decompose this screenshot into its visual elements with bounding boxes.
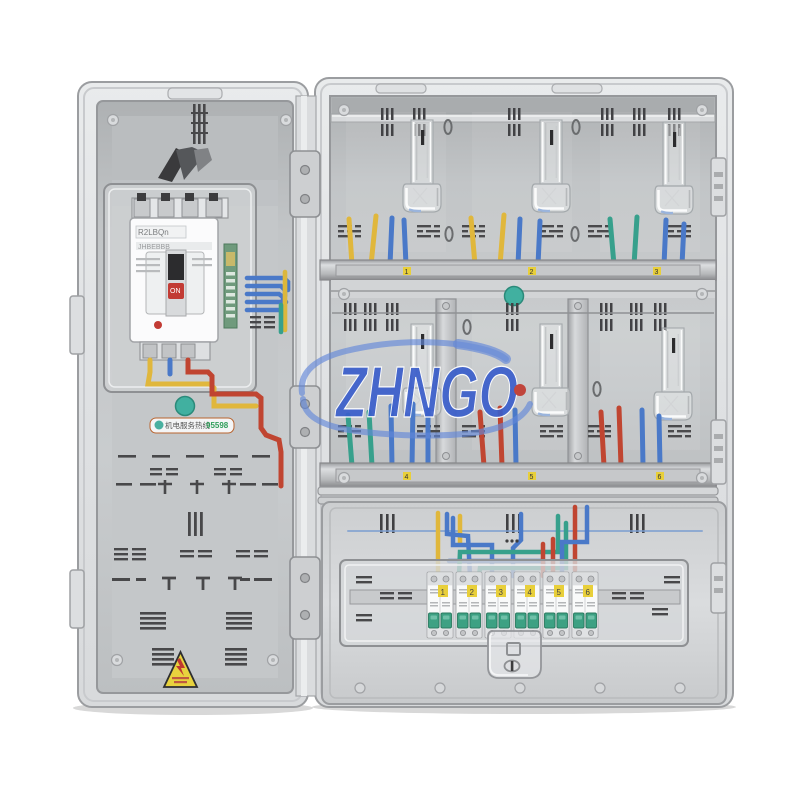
svg-text:5: 5 [557,588,562,597]
svg-text:3: 3 [499,588,504,597]
svg-text:2: 2 [530,269,534,276]
svg-text:6: 6 [586,588,591,597]
svg-text:ON: ON [170,288,181,295]
svg-text:5: 5 [530,474,534,481]
svg-text:1: 1 [441,588,446,597]
svg-text:R2LBQn: R2LBQn [138,228,169,237]
svg-text:4: 4 [405,474,409,481]
svg-text:4: 4 [528,588,533,597]
svg-text:2: 2 [470,588,475,597]
svg-text:ZHNGO: ZHNGO [334,353,518,433]
svg-text:JHBEBBB: JHBEBBB [138,244,170,251]
svg-text:机电服务热线: 机电服务热线 [165,420,210,430]
svg-text:6: 6 [658,474,662,481]
svg-text:3: 3 [655,269,659,276]
svg-text:95598: 95598 [206,421,229,430]
svg-text:1: 1 [405,269,409,276]
